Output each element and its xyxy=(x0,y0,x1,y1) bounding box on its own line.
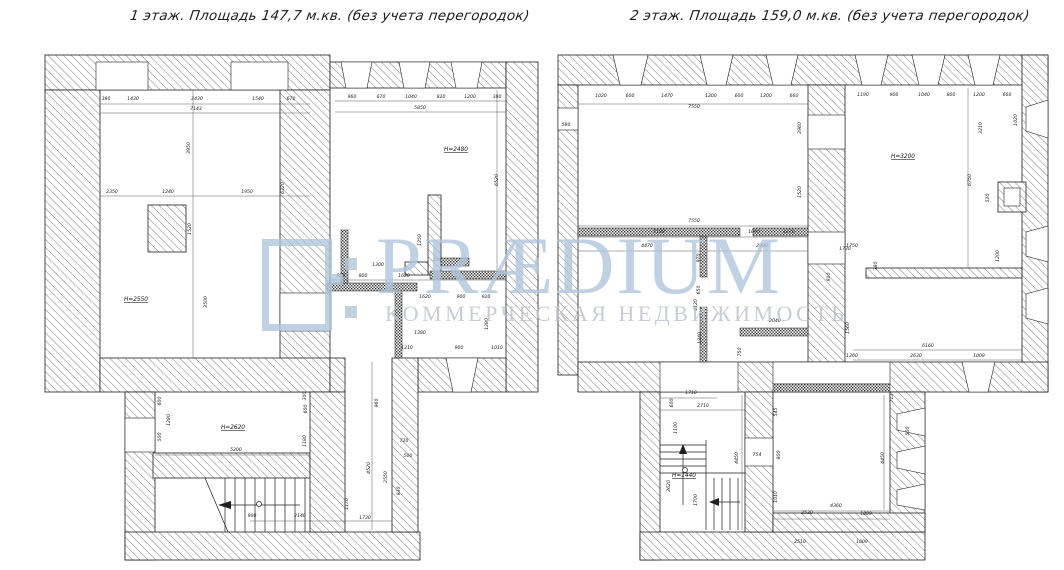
svg-text:1730: 1730 xyxy=(359,515,371,521)
svg-text:1100: 1100 xyxy=(673,422,679,434)
floor2-plan: 5801020600147012006001200660755011909001… xyxy=(558,55,1048,560)
svg-text:1009: 1009 xyxy=(973,353,985,359)
stair-direction-arrow xyxy=(218,501,231,509)
svg-text:4520: 4520 xyxy=(366,462,372,474)
svg-text:2960: 2960 xyxy=(797,122,803,134)
svg-text:800: 800 xyxy=(359,273,368,279)
svg-text:650: 650 xyxy=(696,286,702,295)
svg-text:2530: 2530 xyxy=(801,510,813,516)
svg-text:3210: 3210 xyxy=(978,122,984,134)
svg-text:4120: 4120 xyxy=(693,299,699,311)
svg-text:1540: 1540 xyxy=(252,96,264,102)
svg-text:970: 970 xyxy=(696,254,702,263)
svg-text:2510: 2510 xyxy=(794,539,806,545)
svg-text:800: 800 xyxy=(776,451,782,460)
svg-text:713: 713 xyxy=(889,394,895,403)
svg-text:870: 870 xyxy=(337,273,346,279)
svg-text:820: 820 xyxy=(437,94,446,100)
svg-text:2630: 2630 xyxy=(910,353,922,359)
svg-text:1710: 1710 xyxy=(685,390,697,396)
svg-text:900: 900 xyxy=(457,294,466,300)
svg-text:3950: 3950 xyxy=(186,142,192,154)
svg-text:1010: 1010 xyxy=(773,491,779,503)
svg-text:600: 600 xyxy=(303,405,309,414)
svg-text:750: 750 xyxy=(737,348,743,357)
svg-text:910: 910 xyxy=(826,273,832,282)
svg-text:4450: 4450 xyxy=(734,452,740,464)
svg-text:1009: 1009 xyxy=(856,539,868,545)
svg-text:900: 900 xyxy=(455,345,464,351)
svg-text:Н=2550: Н=2550 xyxy=(124,297,148,303)
svg-text:1730: 1730 xyxy=(839,246,851,252)
svg-text:1340: 1340 xyxy=(697,332,703,344)
svg-text:600: 600 xyxy=(626,93,635,99)
svg-text:1250: 1250 xyxy=(417,234,423,246)
svg-text:900: 900 xyxy=(248,513,257,519)
svg-text:5180: 5180 xyxy=(653,229,665,235)
svg-text:500: 500 xyxy=(404,453,413,459)
svg-text:7143: 7143 xyxy=(190,106,202,112)
svg-text:1009: 1009 xyxy=(860,511,872,517)
svg-text:920: 920 xyxy=(482,294,491,300)
svg-text:7550: 7550 xyxy=(688,104,700,110)
svg-text:1210: 1210 xyxy=(401,345,413,351)
svg-text:300: 300 xyxy=(302,392,308,401)
svg-text:2140: 2140 xyxy=(294,513,306,519)
svg-text:1240: 1240 xyxy=(162,189,174,195)
svg-text:4450: 4450 xyxy=(880,452,886,464)
svg-text:1040: 1040 xyxy=(918,92,930,98)
floor1-partitions xyxy=(327,230,506,358)
svg-text:2550: 2550 xyxy=(383,471,389,483)
svg-text:1270: 1270 xyxy=(783,229,795,235)
svg-text:1700: 1700 xyxy=(693,494,699,506)
svg-text:1260: 1260 xyxy=(846,353,858,359)
svg-text:3500: 3500 xyxy=(203,296,209,308)
svg-text:1520: 1520 xyxy=(187,223,193,235)
svg-text:600: 600 xyxy=(735,93,744,99)
svg-text:1470: 1470 xyxy=(661,93,673,99)
svg-text:660: 660 xyxy=(1003,92,1012,98)
svg-text:670: 670 xyxy=(377,94,386,100)
svg-text:380: 380 xyxy=(493,94,502,100)
svg-text:1040: 1040 xyxy=(405,94,417,100)
svg-text:1620: 1620 xyxy=(419,294,431,300)
svg-text:4470: 4470 xyxy=(641,243,653,249)
svg-text:1020: 1020 xyxy=(1013,114,1019,126)
svg-text:380: 380 xyxy=(102,96,111,102)
svg-text:1280: 1280 xyxy=(166,414,172,426)
svg-text:6160: 6160 xyxy=(922,343,934,349)
svg-text:1170: 1170 xyxy=(344,498,350,510)
floorplan-document: 1 этаж. Площадь 147,7 м.кв. (без учета п… xyxy=(0,0,1064,570)
svg-text:1200: 1200 xyxy=(973,92,985,98)
svg-text:5850: 5850 xyxy=(414,105,426,111)
svg-text:600: 600 xyxy=(669,399,675,408)
svg-text:2990: 2990 xyxy=(756,243,768,249)
svg-text:2350: 2350 xyxy=(106,189,118,195)
floor2-stairs xyxy=(660,440,745,530)
svg-text:1300: 1300 xyxy=(372,262,384,268)
svg-text:1200: 1200 xyxy=(995,250,1001,262)
svg-text:1950: 1950 xyxy=(241,189,253,195)
svg-text:4360: 4360 xyxy=(830,503,842,509)
svg-text:1520: 1520 xyxy=(797,186,803,198)
svg-text:520: 520 xyxy=(985,194,991,203)
svg-text:1180: 1180 xyxy=(302,435,308,447)
svg-text:720: 720 xyxy=(400,438,409,444)
svg-text:1200: 1200 xyxy=(760,93,772,99)
svg-text:1380: 1380 xyxy=(414,330,426,336)
floor2-walls xyxy=(558,55,1048,560)
svg-text:2040: 2040 xyxy=(769,318,781,324)
svg-text:1090: 1090 xyxy=(748,229,760,235)
svg-text:900: 900 xyxy=(890,92,899,98)
svg-text:1200: 1200 xyxy=(464,94,476,100)
svg-text:150: 150 xyxy=(433,257,442,263)
svg-text:1010: 1010 xyxy=(491,345,503,351)
svg-text:6520: 6520 xyxy=(494,174,500,186)
stair-up-arrow xyxy=(679,444,687,454)
svg-text:1200: 1200 xyxy=(705,93,717,99)
floor1-stairs xyxy=(205,478,305,532)
svg-text:960: 960 xyxy=(374,399,380,408)
svg-text:6320: 6320 xyxy=(280,182,286,194)
svg-text:6750: 6750 xyxy=(967,174,973,186)
svg-text:2620: 2620 xyxy=(666,480,672,492)
svg-text:Н=1440: Н=1440 xyxy=(672,473,696,479)
svg-text:2710: 2710 xyxy=(697,403,709,409)
floor2-dimension-texts: 5801020600147012006001200660755011909001… xyxy=(562,92,1019,545)
floor2-room-labels: Н=3200Н=1440 xyxy=(672,154,915,479)
svg-text:1190: 1190 xyxy=(857,92,869,98)
svg-text:5200: 5200 xyxy=(230,447,242,453)
floor1-plan: 3801430243015406707143960670104082012003… xyxy=(45,55,538,560)
svg-text:1620: 1620 xyxy=(398,273,410,279)
svg-text:660: 660 xyxy=(790,93,799,99)
svg-text:754: 754 xyxy=(753,452,762,458)
svg-text:380: 380 xyxy=(873,262,879,271)
svg-text:545: 545 xyxy=(773,408,779,417)
svg-text:670: 670 xyxy=(287,96,296,102)
floor2-windows xyxy=(558,55,1048,510)
svg-text:500: 500 xyxy=(157,433,163,442)
svg-text:Н=2480: Н=2480 xyxy=(444,147,468,153)
svg-text:960: 960 xyxy=(348,94,357,100)
svg-text:500: 500 xyxy=(905,427,911,436)
svg-text:600: 600 xyxy=(157,397,163,406)
svg-text:1560: 1560 xyxy=(845,322,851,334)
svg-text:580: 580 xyxy=(562,122,571,128)
floorplan-drawing: 3801430243015406707143960670104082012003… xyxy=(0,0,1064,570)
svg-text:1430: 1430 xyxy=(127,96,139,102)
svg-text:2430: 2430 xyxy=(191,96,203,102)
svg-text:Н=2620: Н=2620 xyxy=(221,425,245,431)
svg-text:Н=3200: Н=3200 xyxy=(891,154,915,160)
svg-text:7550: 7550 xyxy=(688,218,700,224)
svg-text:1280: 1280 xyxy=(484,318,490,330)
svg-text:1020: 1020 xyxy=(595,93,607,99)
svg-text:800: 800 xyxy=(947,92,956,98)
svg-text:930: 930 xyxy=(396,487,402,496)
